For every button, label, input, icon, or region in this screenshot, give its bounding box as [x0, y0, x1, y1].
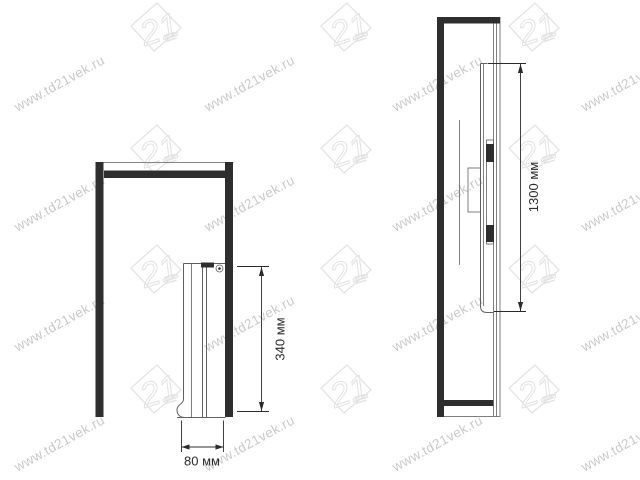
dim-label-340: 340 мм — [273, 317, 288, 360]
screw-center-dot — [218, 267, 221, 270]
arrow-up-icon — [518, 64, 523, 73]
carriage-upper-block — [486, 144, 494, 162]
lift-channel-front — [177, 263, 226, 418]
side-view: 1300 мм — [437, 17, 541, 417]
door-panel-lines — [494, 24, 497, 417]
front-view: 340 мм 80 мм — [96, 162, 288, 469]
side-top-panel — [437, 17, 500, 24]
channel-top-cap — [201, 263, 214, 268]
dim-label-80: 80 мм — [184, 454, 220, 469]
drawing-page: www.td21vek.ru www.td21vek.ru www.td21ve… — [0, 0, 640, 480]
arrow-down-icon — [518, 302, 523, 311]
technical-drawing-canvas: 340 мм 80 мм — [0, 0, 640, 480]
arrow-left-icon — [182, 444, 190, 449]
arrow-up-icon — [259, 267, 264, 276]
bottom-hook — [177, 399, 185, 418]
dimension-80: 80 мм — [182, 421, 224, 469]
rail-bottom-curve — [481, 306, 494, 313]
front-frame-top-rail — [104, 171, 225, 179]
arrow-right-icon — [216, 444, 224, 449]
carriage-lower-block — [486, 225, 494, 242]
front-frame-left-stile — [96, 162, 104, 417]
cabinet-outline — [438, 18, 501, 417]
dim-label-1300: 1300 мм — [526, 162, 541, 212]
mounting-bracket — [468, 168, 481, 212]
side-bottom-rail — [444, 400, 494, 406]
arrow-down-icon — [259, 402, 264, 411]
side-left-panel — [437, 17, 444, 417]
dimension-340: 340 мм — [237, 267, 288, 412]
lift-rail-side — [460, 64, 495, 313]
front-frame-right-stile — [225, 162, 233, 417]
dimension-1300: 1300 мм — [488, 64, 541, 312]
